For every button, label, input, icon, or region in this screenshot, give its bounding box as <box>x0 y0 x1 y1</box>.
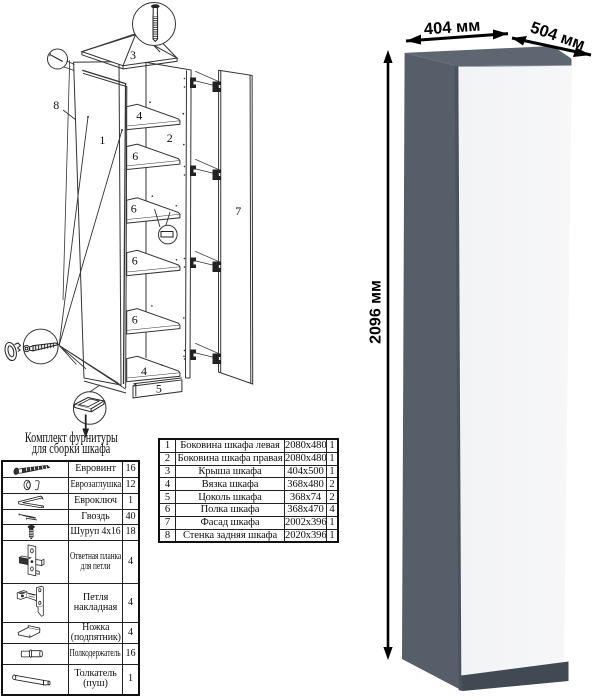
svg-text:2096 мм: 2096 мм <box>368 280 385 344</box>
svg-text:4: 4 <box>141 364 147 378</box>
svg-text:2: 2 <box>167 131 173 145</box>
svg-text:6: 6 <box>131 202 137 216</box>
svg-text:6: 6 <box>132 312 138 326</box>
svg-text:5: 5 <box>156 382 162 396</box>
svg-text:4: 4 <box>136 109 142 123</box>
svg-text:3: 3 <box>130 48 136 62</box>
svg-text:6: 6 <box>132 254 138 268</box>
svg-text:7: 7 <box>235 204 241 218</box>
svg-text:6: 6 <box>132 149 138 163</box>
svg-text:8: 8 <box>53 98 59 112</box>
svg-text:1: 1 <box>99 133 105 147</box>
